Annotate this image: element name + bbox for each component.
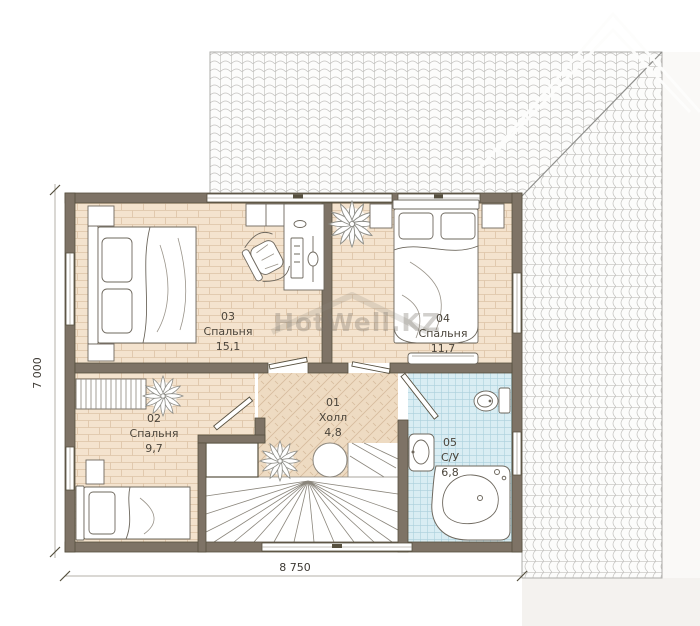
nightstand-bedroom-02 xyxy=(86,460,104,484)
hall-round-table xyxy=(313,443,347,477)
outside-shading xyxy=(522,578,700,626)
room-label-bathroom-05: 05 С/У 6,8 xyxy=(400,435,500,480)
room-label-bedroom-03: 03 Спальня 15,1 xyxy=(178,309,278,354)
bed-single-bedroom-02 xyxy=(76,486,190,540)
room-area: 4,8 xyxy=(283,425,383,440)
floor-plan-canvas: HotWell.KZ 03 Спальня 15,1 04 Спальня 11… xyxy=(0,0,700,626)
room-name: Холл xyxy=(283,410,383,425)
dimension-horizontal: 8 750 xyxy=(245,561,345,575)
room-label-hall-01: 01 Холл 4,8 xyxy=(283,395,383,440)
room-number: 05 xyxy=(400,435,500,450)
room-number: 03 xyxy=(178,309,278,324)
room-label-bedroom-02: 02 Спальня 9,7 xyxy=(104,411,204,456)
room-area: 15,1 xyxy=(178,339,278,354)
room-area: 11,7 xyxy=(393,341,493,356)
room-area: 6,8 xyxy=(400,465,500,480)
room-number: 01 xyxy=(283,395,383,410)
outside-shading-right xyxy=(662,52,700,578)
dimension-vertical: 7 000 xyxy=(31,323,45,423)
room-name: С/У xyxy=(400,450,500,465)
stair-closet xyxy=(206,443,258,477)
room-name: Спальня xyxy=(104,426,204,441)
room-name: Спальня xyxy=(393,326,493,341)
room-area: 9,7 xyxy=(104,441,204,456)
door-bedroom-04 xyxy=(352,362,390,374)
room-number: 04 xyxy=(393,311,493,326)
room-label-bedroom-04: 04 Спальня 11,7 xyxy=(393,311,493,356)
radiator-wardrobe-bedroom-02 xyxy=(76,379,146,409)
room-number: 02 xyxy=(104,411,204,426)
room-name: Спальня xyxy=(178,324,278,339)
